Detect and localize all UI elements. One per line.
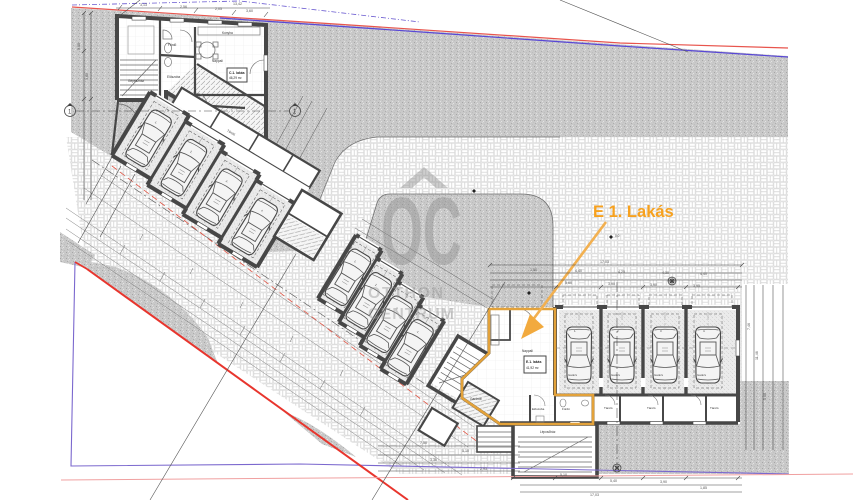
svg-text:Gépészház: Gépészház xyxy=(128,79,145,83)
svg-text:1,85: 1,85 xyxy=(700,486,707,490)
svg-text:3,13: 3,13 xyxy=(140,3,147,7)
svg-text:Előszoba: Előszoba xyxy=(167,75,180,79)
svg-text:Konyha: Konyha xyxy=(222,31,233,35)
svg-text:4,25: 4,25 xyxy=(618,270,625,274)
svg-text:4.: 4. xyxy=(703,329,706,333)
svg-text:1.: 1. xyxy=(574,329,577,333)
svg-text:3.: 3. xyxy=(660,329,663,333)
svg-text:Gardrób: Gardrób xyxy=(470,397,482,401)
svg-text:OTTHON: OTTHON xyxy=(368,285,445,302)
svg-text:3,90: 3,90 xyxy=(608,282,615,286)
svg-text:3,90: 3,90 xyxy=(660,480,667,484)
svg-text:E 1. Lakás: E 1. Lakás xyxy=(593,203,674,221)
svg-text:3,60: 3,60 xyxy=(85,73,89,80)
svg-text:2,56: 2,56 xyxy=(180,5,187,9)
svg-text:2,05: 2,05 xyxy=(215,7,222,11)
svg-text:5,10: 5,10 xyxy=(560,473,567,477)
svg-text:1,50: 1,50 xyxy=(530,268,537,272)
svg-text:Tároló: Tároló xyxy=(604,406,613,410)
svg-text:46,29 m²: 46,29 m² xyxy=(229,76,242,80)
svg-text:Nappali: Nappali xyxy=(522,349,533,353)
svg-text:Tároló: Tároló xyxy=(710,406,719,410)
svg-text:17,03: 17,03 xyxy=(590,493,599,497)
svg-text:E.1. lakás: E.1. lakás xyxy=(526,360,542,364)
svg-text:OC: OC xyxy=(381,179,462,285)
svg-text:17,03: 17,03 xyxy=(600,260,609,264)
svg-text:5,10: 5,10 xyxy=(462,449,469,453)
svg-text:Tároló: Tároló xyxy=(647,406,656,410)
svg-text:Garázs: Garázs xyxy=(611,373,621,377)
svg-text:Előszoba: Előszoba xyxy=(532,407,545,411)
svg-text:7,50: 7,50 xyxy=(420,441,427,445)
svg-text:3,90: 3,90 xyxy=(650,283,657,287)
svg-text:41,92 m²: 41,92 m² xyxy=(526,366,539,370)
svg-text:2.: 2. xyxy=(617,329,620,333)
svg-text:13,42: 13,42 xyxy=(233,2,242,6)
svg-text:5,00: 5,00 xyxy=(77,43,81,50)
svg-text:11,46: 11,46 xyxy=(755,351,759,360)
svg-text:5,40: 5,40 xyxy=(610,479,617,483)
svg-text:5,00: 5,00 xyxy=(763,393,767,400)
svg-text:Garázs: Garázs xyxy=(568,373,578,377)
svg-text:4,30: 4,30 xyxy=(662,271,669,275)
svg-text:3,60: 3,60 xyxy=(246,9,253,13)
svg-text:C.1. lakás: C.1. lakás xyxy=(229,71,245,75)
svg-text:0,0: 0,0 xyxy=(615,234,620,238)
svg-text:7,46: 7,46 xyxy=(747,323,751,330)
svg-text:Lépcsőház: Lépcsőház xyxy=(540,430,556,434)
svg-text:3,30: 3,30 xyxy=(430,458,437,462)
svg-text:Garázs: Garázs xyxy=(654,373,664,377)
svg-text:Fürdő: Fürdő xyxy=(168,43,177,47)
svg-text:5,60: 5,60 xyxy=(565,281,572,285)
svg-text:Fürdő: Fürdő xyxy=(562,407,570,411)
svg-text:Nappali: Nappali xyxy=(212,59,223,63)
svg-text:Garázs: Garázs xyxy=(697,373,707,377)
svg-text:CENTRUM: CENTRUM xyxy=(368,306,455,323)
svg-text:4,40: 4,40 xyxy=(575,269,582,273)
svg-text:3,95: 3,95 xyxy=(693,284,700,288)
svg-text:2,93: 2,93 xyxy=(480,467,487,471)
svg-text:4,40: 4,40 xyxy=(700,272,707,276)
